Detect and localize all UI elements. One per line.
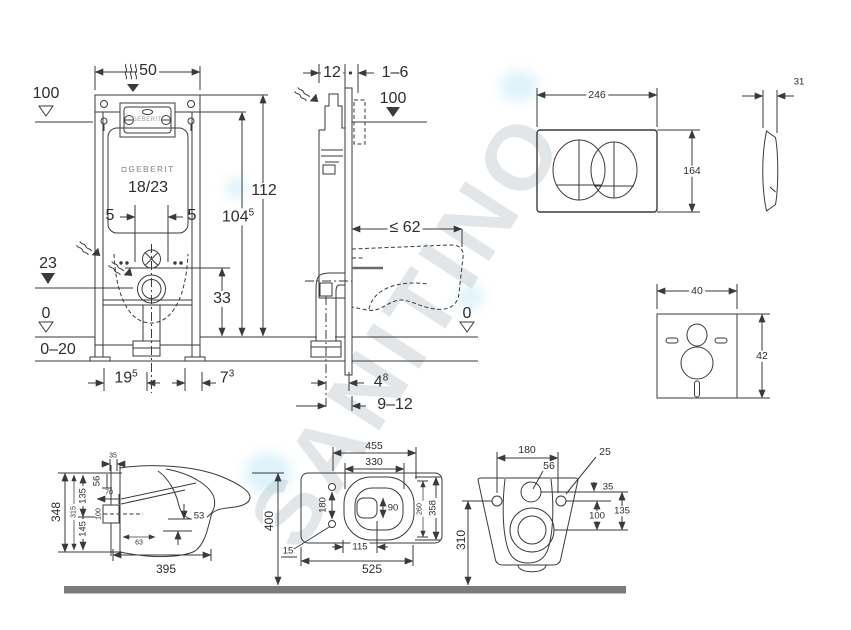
- dim-wc-inner-height: 315: [71, 504, 78, 520]
- level-plate-height: 100: [33, 86, 60, 102]
- flush-plate-view: [537, 88, 794, 212]
- dim-wc-bowl-depth: 330: [365, 457, 383, 468]
- cistern-brand-label: GEBERIT: [121, 166, 174, 174]
- dim-outlet-range: 9–12: [377, 397, 413, 413]
- window-brand-label: GEBERIT: [132, 117, 162, 123]
- dim-foot-depth: 73: [220, 369, 234, 386]
- dim-wc-upper-split: 135: [78, 486, 88, 506]
- floor-bar: [64, 586, 626, 594]
- dim-max-depth: ≤ 62: [387, 220, 422, 236]
- level-floor-zero-side: 0: [463, 306, 472, 322]
- dim-pad-width: 40: [689, 286, 705, 297]
- dim-wc-spout-length: 70: [105, 490, 113, 497]
- level-plate-height-side: 100: [380, 91, 407, 107]
- dim-wc-total-drop: 135: [612, 506, 632, 516]
- cistern-model-label: 18/23: [128, 180, 168, 196]
- dim-wc-rim-depth: 455: [365, 441, 383, 452]
- dim-wc-floor-height: 400: [263, 509, 275, 533]
- dim-wc-trap-inset: 63: [135, 540, 143, 547]
- dim-foot-span: 195: [114, 369, 137, 386]
- dim-wc-mount-height: 310: [455, 528, 467, 552]
- insulation-pad-view: [657, 284, 770, 398]
- dim-pad-height: 42: [754, 351, 770, 362]
- dim-flush-offset-left: 5: [106, 208, 115, 224]
- dim-plate-height: 164: [681, 166, 703, 177]
- technical-drawing-page: SANITINO: [0, 0, 851, 630]
- dim-wc-drain-offset: 115: [350, 542, 369, 552]
- dim-wc-drain-width: 90: [388, 503, 399, 513]
- drawing-canvas: [0, 0, 851, 630]
- level-outlet-height: 23: [39, 256, 57, 272]
- dim-plate-width: 246: [586, 90, 608, 101]
- dim-wc-center-hole: 56: [543, 461, 555, 472]
- dim-wc-row-gap: 35: [603, 482, 614, 492]
- dim-plate-depth: 31: [794, 77, 805, 87]
- level-floor-zero: 0: [42, 306, 51, 322]
- dim-wc-total-depth: 525: [362, 563, 382, 575]
- dim-outlet-floor: 33: [211, 291, 233, 307]
- dim-wc-lower-split: 145: [78, 519, 88, 539]
- dim-wc-outer-width: 358: [428, 498, 438, 518]
- dim-wc-drop: 53: [192, 511, 207, 521]
- dim-frame-width: 50: [137, 63, 159, 79]
- dim-wall-gap: 1–6: [382, 65, 409, 81]
- dim-flush-offset-right: 5: [188, 208, 197, 224]
- dim-wc-body-depth: 395: [156, 563, 176, 575]
- brand-square-icon: [121, 167, 126, 172]
- dim-wc-side-hole: 25: [599, 447, 611, 458]
- dim-wc-rim-drop: 56: [92, 476, 102, 487]
- dim-frame-height: 112: [249, 183, 279, 199]
- dim-actuator-height: 1045: [220, 208, 256, 225]
- dim-wc-top-inset: 35: [109, 453, 117, 460]
- dim-wc-drain-drop: 100: [587, 511, 607, 521]
- dim-wc-hole-inset: 15: [283, 546, 294, 556]
- dim-wc-hole-spacing-front: 180: [518, 445, 536, 456]
- dim-cistern-depth: 12: [321, 65, 343, 81]
- dim-floor-adjust: 0–20: [40, 342, 76, 358]
- frame-side-view: [294, 64, 474, 411]
- dim-outlet-offset: 48: [374, 373, 388, 390]
- dim-wc-body-height: 348: [50, 502, 62, 522]
- dim-wc-inner-width: 260: [417, 501, 424, 517]
- dim-wc-hole-spacing-top: 180: [318, 497, 328, 513]
- dim-wc-inlet-size: 100: [96, 506, 103, 522]
